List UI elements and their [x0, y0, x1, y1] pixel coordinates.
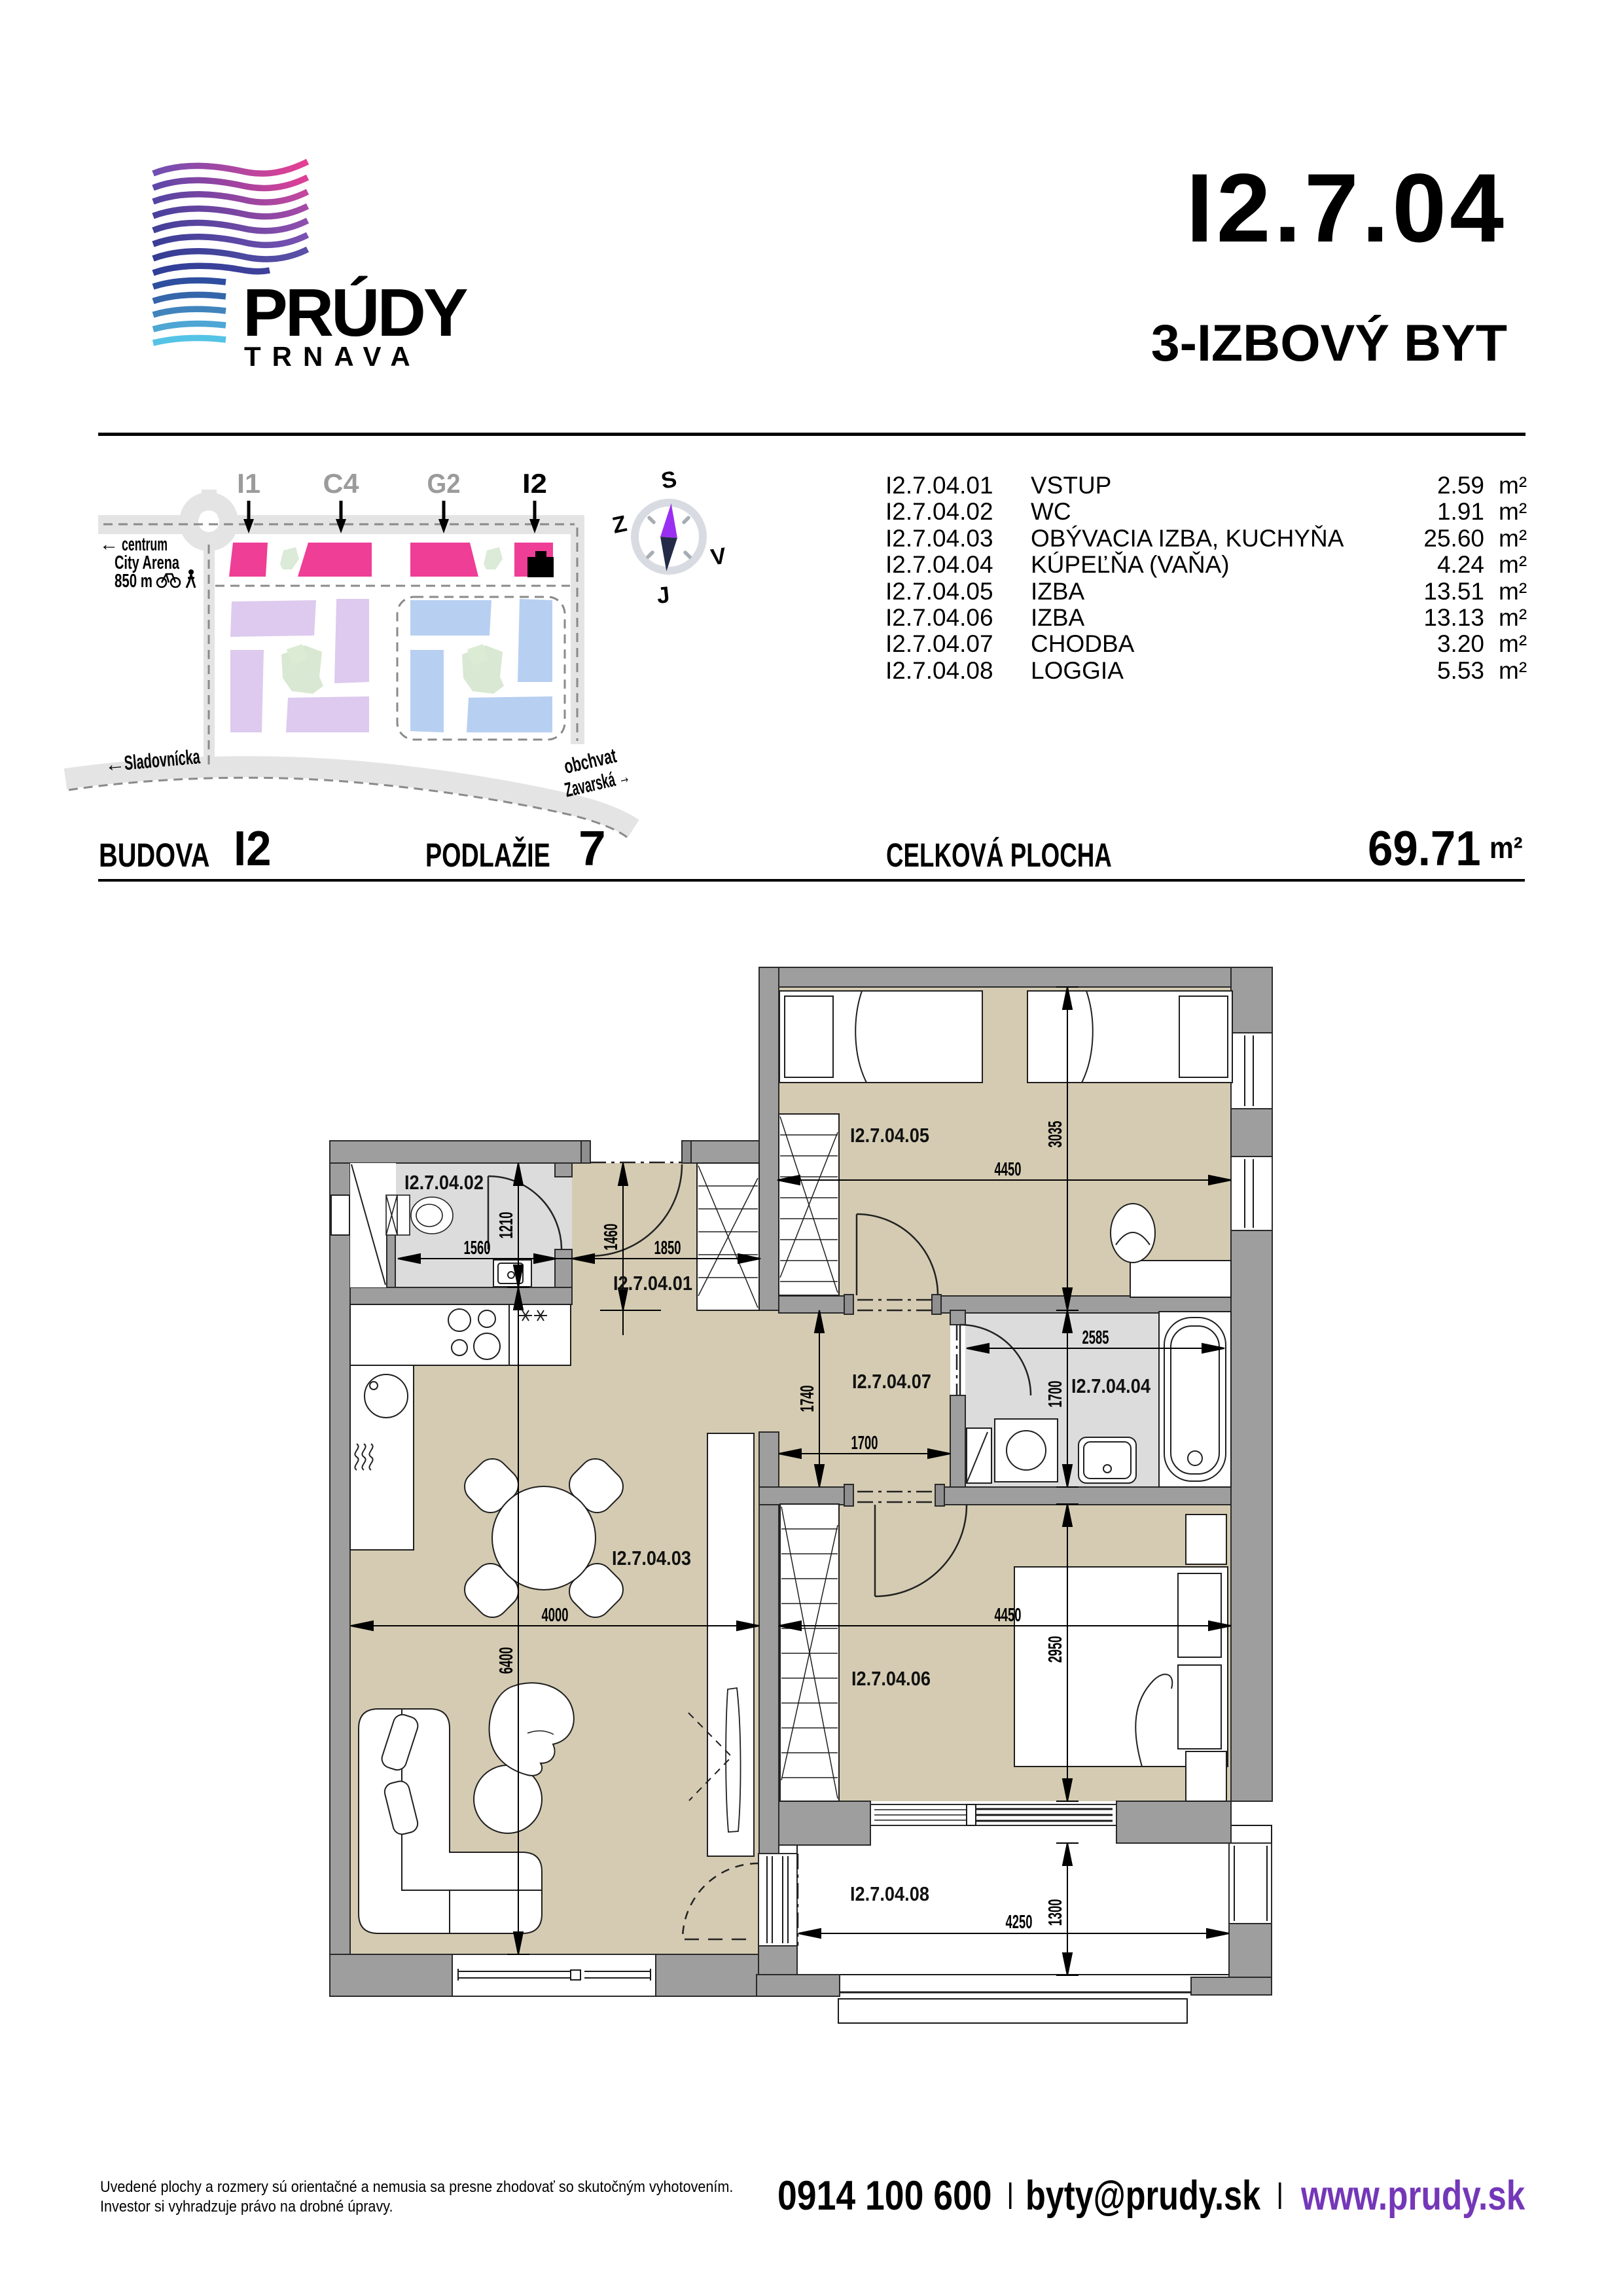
svg-text:I2.7.04.02: I2.7.04.02 [404, 1171, 484, 1194]
svg-text:1560: 1560 [464, 1238, 491, 1259]
svg-text:S: S [659, 466, 679, 493]
svg-text:1850: 1850 [654, 1238, 681, 1259]
svg-text:J: J [656, 582, 671, 609]
svg-text:I2.7.04.04: I2.7.04.04 [1071, 1374, 1151, 1397]
svg-text:I1: I1 [237, 468, 260, 499]
svg-text:I2: I2 [522, 468, 547, 499]
svg-text:2585: 2585 [1082, 1327, 1109, 1348]
svg-text:850 m: 850 m [115, 571, 152, 592]
svg-text:V: V [709, 543, 728, 570]
svg-text:4000: 4000 [542, 1605, 569, 1626]
svg-text:1300: 1300 [1045, 1899, 1066, 1926]
svg-text:I2.7.04.08: I2.7.04.08 [850, 1882, 929, 1905]
svg-text:4450: 4450 [995, 1159, 1022, 1180]
svg-text:C4: C4 [323, 468, 360, 499]
svg-text:4450: 4450 [995, 1605, 1022, 1626]
svg-text:2950: 2950 [1045, 1636, 1066, 1663]
svg-text:Z: Z [610, 511, 629, 539]
svg-text:1700: 1700 [1045, 1381, 1066, 1408]
svg-text:I2.7.04.03: I2.7.04.03 [612, 1547, 691, 1570]
svg-text:6400: 6400 [496, 1647, 517, 1674]
svg-text:I2.7.04.06: I2.7.04.06 [851, 1667, 931, 1690]
svg-text:←: ← [103, 751, 126, 776]
svg-text:1210: 1210 [496, 1212, 517, 1239]
svg-text:3035: 3035 [1045, 1121, 1066, 1148]
svg-text:1740: 1740 [797, 1386, 818, 1412]
svg-text:I2.7.04.05: I2.7.04.05 [850, 1124, 929, 1147]
svg-text:G2: G2 [427, 468, 461, 499]
svg-text:1460: 1460 [601, 1224, 622, 1251]
svg-text:1700: 1700 [851, 1433, 878, 1454]
svg-text:I2.7.04.01: I2.7.04.01 [613, 1272, 692, 1295]
svg-text:I2.7.04.07: I2.7.04.07 [852, 1370, 931, 1393]
svg-text:4250: 4250 [1006, 1912, 1033, 1933]
